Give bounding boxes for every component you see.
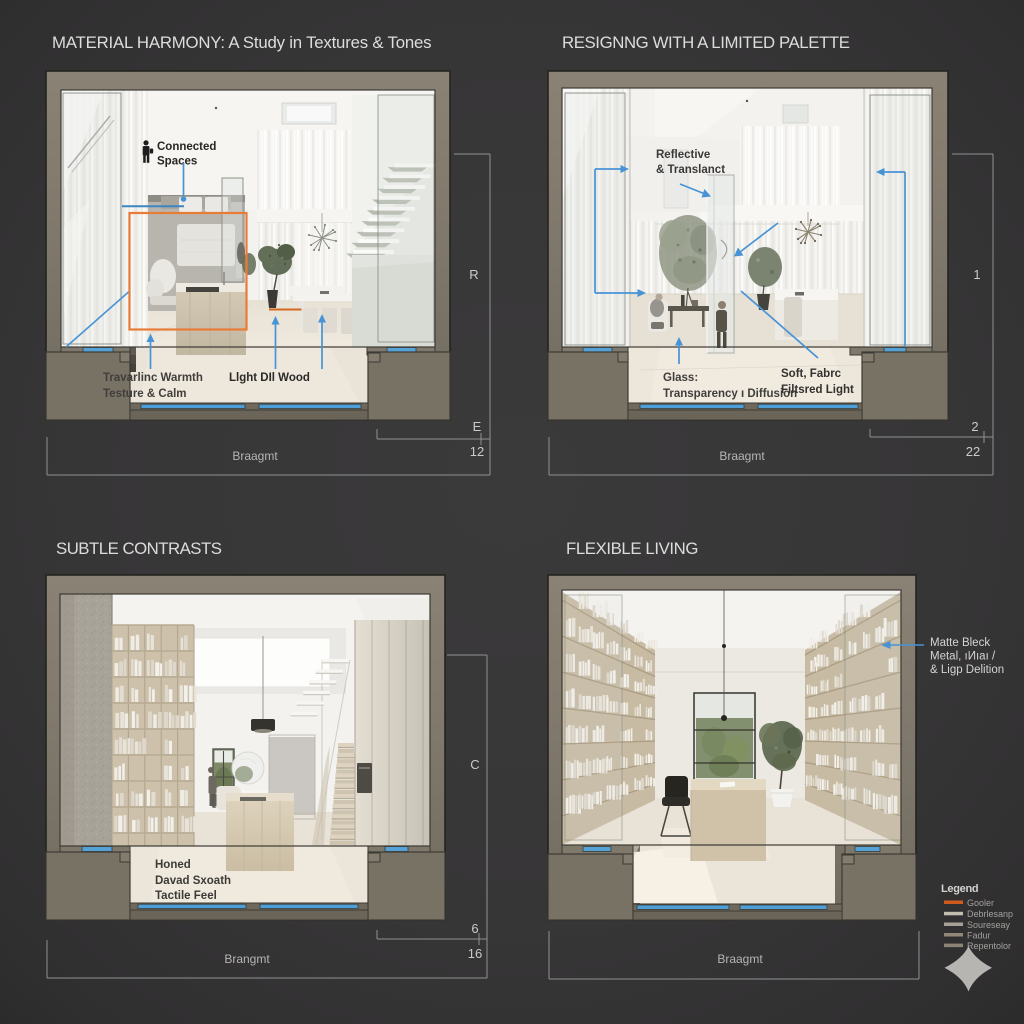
svg-text:6: 6	[471, 921, 478, 936]
svg-text:Spaces: Spaces	[157, 156, 197, 168]
svg-text:Soft, Fabrc: Soft, Fabrc	[781, 368, 842, 380]
svg-text:Filtsred Light: Filtsred Light	[781, 384, 854, 396]
svg-text:Glass:: Glass:	[663, 372, 698, 384]
svg-text:& Translanct: & Translanct	[656, 164, 725, 176]
svg-text:22: 22	[966, 444, 980, 459]
svg-text:12: 12	[470, 444, 484, 459]
svg-text:Tactile Feel: Tactile Feel	[155, 890, 217, 902]
svg-text:Repentolor: Repentolor	[967, 941, 1011, 951]
svg-text:Reflective: Reflective	[656, 149, 710, 161]
svg-text:Travarlinc Warmth: Travarlinc Warmth	[103, 372, 203, 384]
svg-text:Braagmt: Braagmt	[717, 952, 763, 966]
svg-text:MATERIAL HARMONY: A Study in T: MATERIAL HARMONY: A Study in Textures & …	[52, 33, 431, 52]
svg-text:Connected: Connected	[157, 141, 216, 153]
svg-text:E: E	[473, 419, 482, 434]
svg-text:Soureseay: Soureseay	[967, 920, 1011, 930]
svg-text:2: 2	[971, 419, 978, 434]
svg-text:Llght DIl Wood: Llght DIl Wood	[229, 372, 310, 384]
svg-text:Gooler: Gooler	[967, 898, 994, 908]
svg-text:Metal, ıИıaı /: Metal, ıИıaı /	[930, 651, 996, 663]
svg-text:FLEXIBLE LIVING: FLEXIBLE LIVING	[566, 539, 698, 558]
svg-text:Testure & Calm: Testure & Calm	[103, 388, 187, 400]
svg-text:R: R	[469, 267, 478, 282]
svg-text:Fadur: Fadur	[967, 931, 991, 941]
svg-text:1: 1	[973, 267, 980, 282]
svg-text:Legend: Legend	[941, 883, 978, 895]
svg-text:Transparency ı Diffusion: Transparency ı Diffusion	[663, 388, 797, 400]
svg-text:SUBTLE CONTRASTS: SUBTLE CONTRASTS	[56, 539, 222, 558]
svg-text:Honed: Honed	[155, 859, 191, 871]
svg-text:Braagmt: Braagmt	[719, 449, 765, 463]
svg-text:Debrlesanp: Debrlesanp	[967, 909, 1013, 919]
svg-text:Brangmt: Brangmt	[224, 952, 270, 966]
svg-text:RESIGNNG WITH A LIMITED PALETT: RESIGNNG WITH A LIMITED PALETTE	[562, 33, 850, 52]
svg-text:C: C	[470, 757, 479, 772]
svg-text:16: 16	[468, 946, 482, 961]
svg-text:Braagmt: Braagmt	[232, 449, 278, 463]
svg-text:Matte Bleck: Matte Bleck	[930, 637, 990, 649]
svg-text:Davad Sxoath: Davad Sxoath	[155, 875, 231, 887]
svg-text:& Ligp Delition: & Ligp Delition	[930, 664, 1004, 676]
